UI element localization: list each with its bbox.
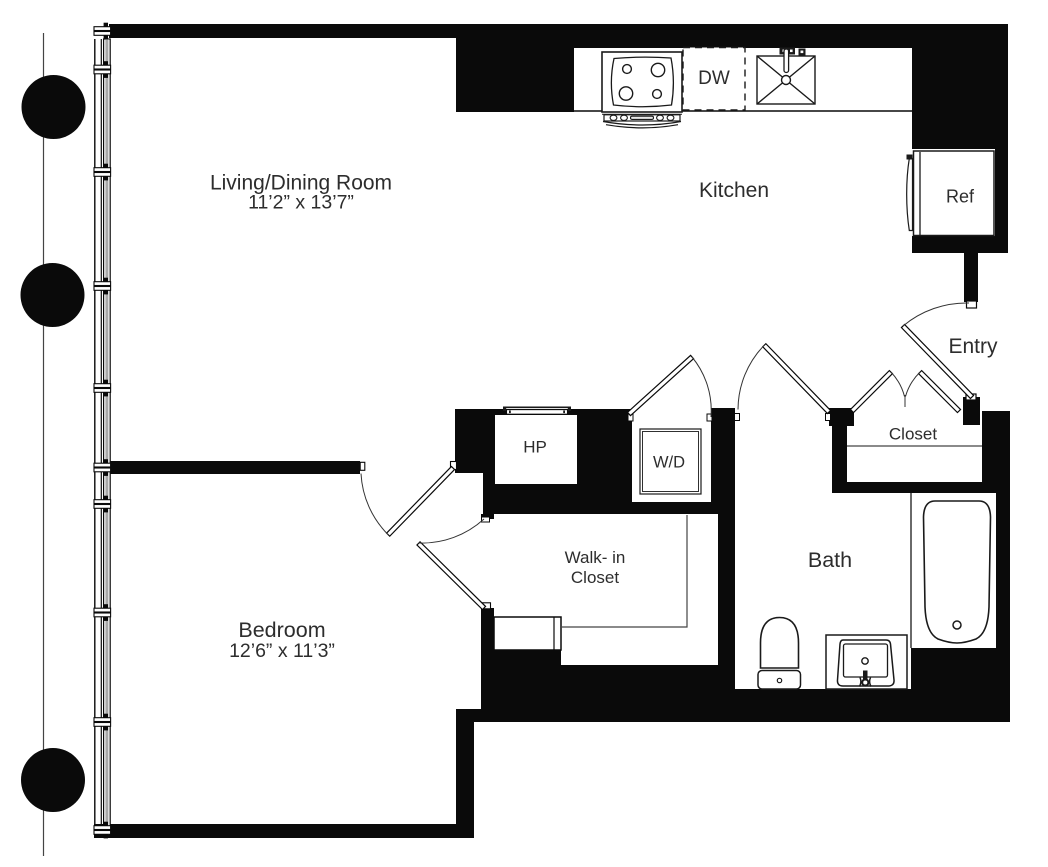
svg-text:Bedroom: Bedroom xyxy=(238,618,325,642)
svg-text:Kitchen: Kitchen xyxy=(699,179,769,202)
svg-text:Entry: Entry xyxy=(948,335,998,358)
svg-text:Ref: Ref xyxy=(946,187,975,207)
svg-text:12’6” x 11’3”: 12’6” x 11’3” xyxy=(229,640,335,662)
svg-text:Closet: Closet xyxy=(889,425,937,444)
svg-text:W/D: W/D xyxy=(653,454,685,472)
svg-text:11’2” x 13’7”: 11’2” x 13’7” xyxy=(248,192,354,214)
svg-text:HP: HP xyxy=(523,438,547,457)
svg-text:Bath: Bath xyxy=(808,548,852,572)
svg-text:Closet: Closet xyxy=(571,568,619,587)
svg-text:DW: DW xyxy=(698,68,730,89)
svg-text:Walk- in: Walk- in xyxy=(565,548,626,567)
